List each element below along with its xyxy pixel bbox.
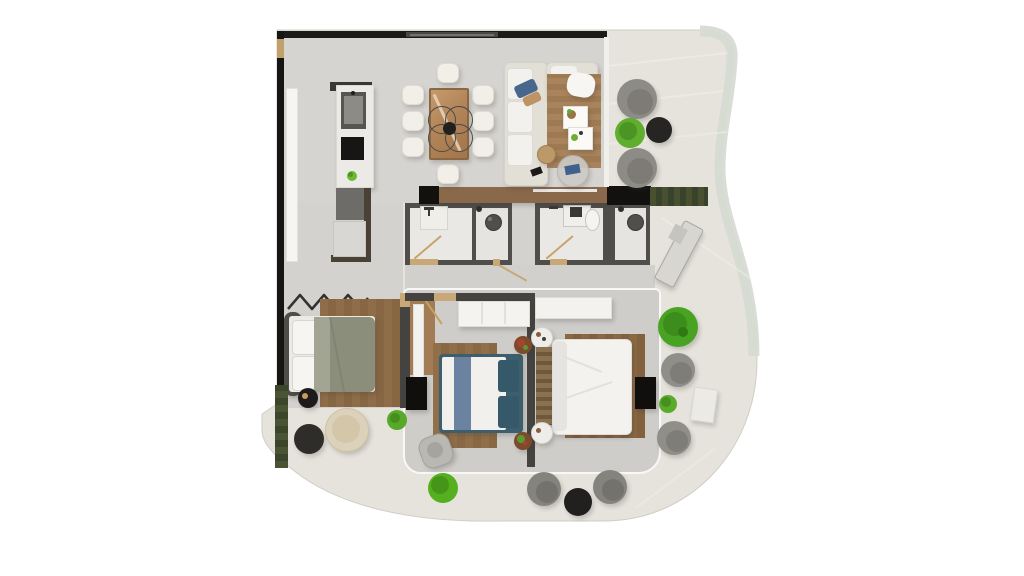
terrace-small-plant-inner — [661, 397, 671, 407]
kitchen-hall-floor — [283, 203, 403, 408]
dining-chair — [402, 111, 424, 131]
closet-wall-vertical — [364, 188, 371, 261]
terrace-pouf — [657, 421, 691, 455]
wall-cap-right — [607, 186, 651, 205]
great-room-floor — [283, 36, 605, 203]
bedroom2-wardrobe — [458, 301, 530, 327]
sofa-chaise — [546, 62, 598, 101]
bedroom3-side-table — [531, 422, 553, 444]
dining-chair — [472, 85, 494, 105]
patio-dark-table — [294, 424, 324, 454]
bathroom-b-door-threshold — [550, 259, 567, 265]
terrace-tree — [658, 307, 698, 347]
bedroom2-bed-frame — [439, 354, 523, 433]
south-terrace-plant — [428, 473, 458, 503]
hallway-floor — [405, 265, 655, 290]
bedroom2-side-table — [514, 432, 532, 450]
bathroom-b-toilet — [585, 209, 600, 231]
kitchen-herb-plant — [347, 171, 357, 181]
sofa-cushion — [507, 101, 533, 133]
terrace-tree-inner — [663, 312, 687, 336]
terrace-tile-line — [635, 447, 716, 509]
south-terrace-pouf — [527, 472, 561, 506]
hedge-planter-top — [650, 187, 708, 206]
terrace-tree-core — [678, 327, 688, 337]
bedroom2-bed-runner — [454, 357, 471, 430]
living-rug-wood — [547, 74, 601, 168]
kitchen-herb-plant-inner — [348, 172, 353, 177]
coffee-table — [563, 106, 588, 129]
bedroom2-wardrobe-divider — [481, 302, 483, 324]
bathroom-a-vanity-floor — [410, 208, 472, 260]
bathroom-b-accessory — [618, 206, 624, 212]
bedroom2-rug — [433, 343, 497, 448]
bedroom1-right-wall — [400, 293, 410, 408]
coffee-table-decor — [579, 131, 583, 135]
bathroom-b-faucet — [549, 206, 558, 209]
bedroom3-bed-shadowfold — [553, 341, 567, 431]
top-window — [406, 32, 498, 37]
balcony-pouf-top — [627, 158, 653, 184]
terrace-tile-line — [608, 131, 727, 145]
terrace-tile-line — [608, 90, 723, 105]
left-wall-wood-top — [277, 39, 284, 58]
bedroom1-zigzag-decor — [0, 0, 1024, 576]
terrace-tile-line — [661, 217, 750, 279]
bathroom-b-towel-rail — [545, 235, 573, 260]
balcony-glass-band — [0, 0, 1024, 576]
console-tv — [533, 189, 597, 192]
bedroom3-rug — [565, 334, 645, 438]
bedroom3-side-decor — [536, 332, 541, 337]
sofa-cushion — [507, 68, 533, 100]
bedroom1-headboard — [284, 312, 302, 396]
bathroom-a-faucet — [424, 207, 434, 210]
bathroom-a-faucet — [428, 209, 430, 216]
kitchen-island-cap — [330, 82, 372, 91]
dining-chair — [472, 137, 494, 157]
south-terrace-pouf — [593, 470, 627, 504]
balcony-plant-inner — [619, 122, 637, 140]
round-side-table — [557, 155, 589, 187]
patio-beige-pouf — [325, 408, 369, 452]
bedroom3-side-decor — [542, 337, 546, 341]
left-wall — [277, 31, 284, 407]
closet-wall-horizontal — [331, 255, 371, 262]
sun-lounger — [654, 220, 704, 289]
bedroom1-round-decor-ember — [302, 393, 308, 399]
coffee-table-plant — [571, 134, 578, 141]
south-terrace-pouf-top — [536, 481, 558, 503]
sofa-cushion — [507, 134, 533, 166]
throw-blanket — [565, 71, 597, 99]
patio-small-plant — [387, 410, 407, 430]
dining-chair — [437, 164, 459, 184]
floor-plan-stage — [0, 0, 1024, 576]
chandelier-ring — [428, 124, 456, 152]
closet-unit — [333, 221, 366, 257]
dressing-clothes-rail — [425, 301, 442, 325]
chandelier-ring — [445, 106, 473, 134]
bathroom-b-sink-bowl — [570, 207, 582, 217]
bedroom3-tv-panel — [635, 377, 656, 409]
kitchen-stove — [341, 137, 364, 160]
bedroom1-pillow — [292, 356, 318, 391]
sofa-body — [504, 62, 548, 186]
terrace-pouf-top — [666, 430, 688, 452]
bedroom1-rug — [320, 299, 402, 407]
patio-beige-pouf-top — [332, 415, 360, 443]
dressing-floor-wood — [410, 295, 435, 375]
patio-hedge-left — [275, 385, 288, 468]
bedroom2-top-wall — [405, 293, 535, 301]
bedroom1-pillow — [292, 320, 318, 355]
bedroom2-pillow — [498, 396, 519, 428]
balcony-divider-wall — [604, 37, 609, 187]
bathroom-a-basin-highlight — [488, 217, 492, 221]
bedroom2-tv-panel — [406, 377, 427, 410]
kitchen-sink — [341, 92, 366, 129]
patio-small-plant-inner — [390, 413, 400, 423]
terrace-outline — [0, 0, 1024, 576]
terrace-pouf — [661, 353, 695, 387]
bathroom-a-accessory — [476, 206, 482, 212]
dressing-wardrobe — [413, 304, 424, 378]
bathroom-a-door-threshold — [410, 259, 438, 265]
sofa-pillow-blue — [513, 78, 538, 99]
dining-chair — [402, 85, 424, 105]
bedroom1-round-decor — [298, 388, 318, 408]
bedroom2-door-threshold — [434, 293, 456, 301]
dining-chair — [472, 111, 494, 131]
bathroom-b-basin — [627, 214, 644, 231]
chandelier-ring — [428, 106, 456, 134]
wall-cap-left — [419, 186, 439, 204]
bedroom2-side-plant — [517, 339, 525, 347]
bedroom2-side-plant — [517, 435, 525, 443]
side-table-book — [564, 164, 580, 175]
bedroom3-duvet-crease — [562, 355, 603, 372]
bedroom3-side-table — [531, 327, 553, 349]
south-terrace-pouf-top — [602, 479, 624, 501]
terrace-small-plant — [659, 395, 677, 413]
bedroom3-side-decor — [536, 428, 541, 433]
balcony-plant — [615, 118, 645, 148]
hall-door-swing — [497, 263, 528, 282]
coffee-table-plant — [567, 109, 572, 114]
bedroom2-side-plant — [523, 345, 528, 350]
bedroom2-pillow — [498, 360, 519, 392]
bedroom3-wardrobe — [535, 297, 612, 319]
bedroom2-armchair — [415, 430, 456, 471]
dining-table — [429, 88, 469, 160]
south-terrace-table — [564, 488, 592, 516]
bedroom3-headboard-bench — [536, 347, 555, 425]
kitchen-island — [336, 85, 374, 188]
bedroom2-side-plant — [523, 441, 527, 445]
bedroom2-armchair-seat — [427, 442, 443, 458]
kitchen-lower-cabinet — [336, 188, 364, 220]
corridor-floor — [512, 203, 535, 265]
floor-books — [530, 166, 543, 176]
bathroom-a-basin — [485, 214, 502, 231]
coffee-table — [568, 127, 593, 150]
bedroom3-bed — [552, 339, 632, 435]
sofa-chaise-cushion — [551, 66, 577, 81]
bathroom-b-shower-floor — [615, 208, 646, 260]
south-terrace-plant-inner — [431, 476, 449, 494]
coffee-table-basket — [567, 110, 576, 119]
top-window-glass — [410, 34, 494, 36]
tall-cabinet — [286, 88, 298, 262]
bedroom-block-floor — [403, 288, 661, 474]
wood-stool — [537, 145, 556, 164]
bedroom1-duvet — [314, 317, 375, 392]
bathroom-a-towel-rail — [413, 235, 441, 260]
bedroom2-side-table — [514, 336, 532, 354]
bedroom1-door-threshold — [400, 293, 410, 307]
balcony-pouf — [617, 148, 657, 188]
console-wall-wood — [437, 187, 607, 203]
bedroom1-duvet-fold — [314, 317, 330, 392]
balcony-table — [646, 117, 672, 143]
dining-chair — [402, 137, 424, 157]
bedroom1-mattress — [289, 316, 375, 392]
sun-lounger-backrest — [668, 224, 688, 245]
bathroom-b-sink — [563, 205, 591, 227]
bathroom-b-vanity-floor — [540, 208, 603, 260]
top-wall — [277, 31, 607, 38]
floorplan-canvas — [0, 0, 1024, 576]
dining-table-runner — [433, 93, 462, 150]
sofa-pillow-tan — [522, 91, 543, 108]
bathroom-a-walls — [405, 203, 512, 265]
hall-door-leaf — [493, 259, 500, 266]
chandelier-ring — [445, 124, 473, 152]
balcony-pouf — [617, 79, 657, 119]
bedroom2-right-wall — [527, 293, 535, 467]
chandelier-center — [443, 122, 456, 135]
kitchen-sink-basin — [344, 96, 363, 124]
bathroom-a-counter — [420, 206, 448, 230]
terrace-pouf-top — [670, 362, 692, 384]
terrace-tile-line — [608, 52, 727, 67]
bedroom3-duvet-crease — [566, 381, 612, 398]
bathroom-a-shower-floor — [476, 208, 508, 260]
bedroom2-mattress — [442, 357, 506, 430]
bedroom1-duvet-crease — [329, 317, 345, 392]
terrace-white-table — [690, 386, 718, 423]
balcony-pouf-top — [627, 89, 653, 115]
kitchen-faucet — [351, 91, 355, 95]
bathroom-b-walls — [535, 203, 650, 265]
bedroom2-wardrobe-divider — [504, 302, 506, 324]
dining-chair — [437, 63, 459, 83]
